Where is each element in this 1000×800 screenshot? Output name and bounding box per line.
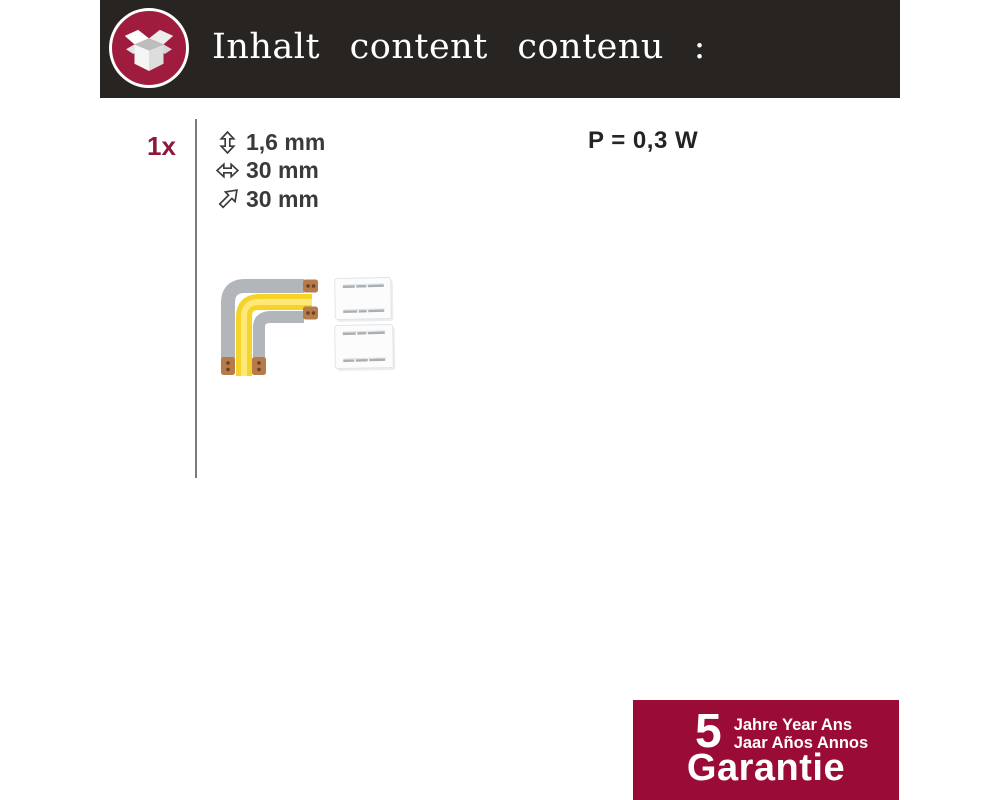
spec-value: 30 mm — [246, 157, 319, 184]
copper-contact — [303, 280, 318, 293]
header-bar: Inhalt content contenu : — [100, 0, 900, 98]
spec-row-length: 30 mm — [216, 187, 325, 212]
warranty-label: Garantie — [633, 747, 899, 790]
quantity-label: 1x — [147, 131, 176, 162]
spec-row-height: 1,6 mm — [216, 130, 325, 155]
spec-value: 30 mm — [246, 186, 319, 213]
copper-contact — [252, 357, 266, 375]
spec-value: 1,6 mm — [246, 129, 325, 156]
product-illustration — [215, 265, 400, 383]
page-title: Inhalt content contenu : — [212, 27, 706, 67]
power-rating: P = 0,3 W — [588, 127, 698, 155]
warranty-badge: 5 Jahre Year Ans Jaar Años Annos Garanti… — [633, 700, 899, 800]
mounting-clip-image — [335, 277, 394, 322]
copper-contact — [221, 357, 235, 375]
copper-contact — [303, 307, 318, 320]
vertical-double-arrow-icon — [216, 131, 239, 154]
mounting-clip-image — [335, 324, 396, 371]
open-box-icon — [109, 8, 189, 88]
vertical-divider — [195, 119, 197, 478]
spec-list: 1,6 mm 30 mm 30 mm — [216, 130, 325, 212]
spec-row-width: 30 mm — [216, 159, 325, 184]
corner-connector-image — [221, 280, 318, 377]
warranty-line1: Jahre Year Ans — [734, 716, 868, 734]
page: Inhalt content contenu : 1x 1,6 mm 30 mm… — [0, 0, 1000, 800]
horizontal-double-arrow-icon — [216, 159, 239, 182]
diagonal-arrow-icon — [216, 188, 239, 211]
